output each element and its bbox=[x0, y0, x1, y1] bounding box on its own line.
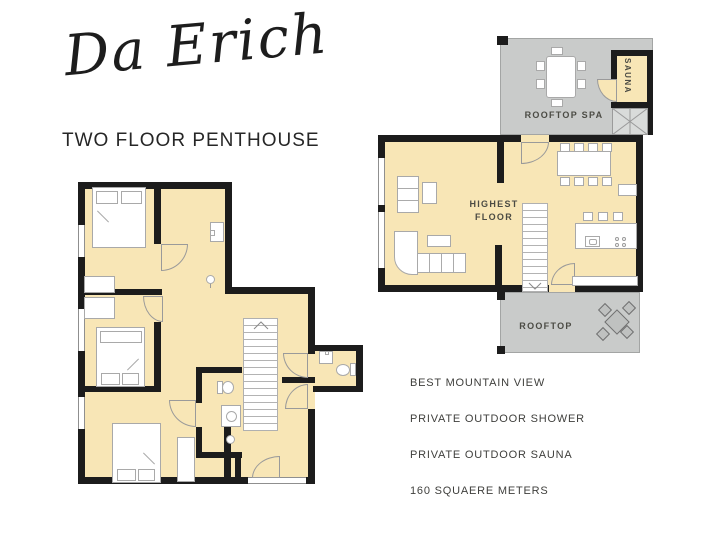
chair bbox=[536, 79, 545, 89]
wall-corner bbox=[497, 36, 508, 45]
feature-item: PRIVATE OUTDOOR SHOWER bbox=[410, 413, 585, 425]
foot-box bbox=[101, 373, 120, 385]
cooktop-burner bbox=[622, 243, 626, 247]
wardrobe bbox=[84, 297, 115, 319]
chair bbox=[560, 177, 570, 186]
window bbox=[378, 158, 385, 205]
foot-box bbox=[117, 469, 136, 481]
chair bbox=[560, 143, 570, 152]
dresser bbox=[84, 276, 115, 293]
blanket-fold bbox=[143, 452, 155, 464]
staircase bbox=[243, 318, 278, 431]
wall bbox=[154, 322, 161, 392]
wall bbox=[235, 457, 241, 484]
wall bbox=[497, 135, 504, 183]
sofa bbox=[397, 176, 419, 213]
dining-table bbox=[546, 56, 576, 98]
wall bbox=[313, 386, 363, 392]
chair bbox=[574, 177, 584, 186]
wardrobe bbox=[177, 437, 195, 482]
chair bbox=[551, 99, 563, 107]
sectional-sofa bbox=[394, 231, 418, 275]
kitchen-sink bbox=[585, 236, 600, 247]
counter bbox=[618, 184, 637, 196]
chair bbox=[588, 177, 598, 186]
blanket-fold bbox=[97, 210, 109, 222]
wall bbox=[282, 377, 315, 383]
page-title: TWO FLOOR PENTHOUSE bbox=[62, 130, 320, 152]
window bbox=[78, 225, 85, 257]
sink bbox=[319, 351, 333, 364]
toilet-tank bbox=[350, 363, 356, 376]
wall bbox=[378, 205, 385, 212]
bar-stool bbox=[583, 212, 593, 221]
stairs-up-arrow bbox=[252, 320, 270, 330]
wall bbox=[308, 287, 315, 354]
wall-cabinet bbox=[210, 222, 224, 242]
washer bbox=[221, 405, 241, 427]
foot-box bbox=[138, 469, 155, 481]
armchair bbox=[422, 182, 437, 204]
tap bbox=[325, 351, 329, 355]
cooktop-burner bbox=[615, 243, 619, 247]
counter bbox=[572, 276, 638, 286]
chair bbox=[577, 61, 586, 71]
wall bbox=[225, 182, 232, 294]
pillow bbox=[96, 191, 118, 204]
cooktop-burner bbox=[615, 237, 619, 241]
pedestal-sink bbox=[206, 275, 215, 284]
wall bbox=[378, 135, 385, 158]
cabinet-handle bbox=[210, 230, 215, 236]
pillow bbox=[121, 191, 142, 204]
highest-floor-label-line1: HIGHEST bbox=[462, 199, 526, 209]
foot-box bbox=[122, 373, 139, 385]
sink-basin bbox=[589, 239, 597, 245]
window bbox=[78, 397, 85, 429]
chair bbox=[577, 79, 586, 89]
toilet-bowl bbox=[336, 364, 350, 376]
double-bed bbox=[96, 327, 145, 387]
double-bed bbox=[92, 187, 146, 248]
fixture-stem bbox=[210, 284, 211, 288]
double-bed bbox=[112, 423, 161, 483]
wall bbox=[549, 135, 643, 142]
chair bbox=[602, 143, 612, 152]
dining-table bbox=[557, 151, 611, 176]
toilet-bowl bbox=[222, 381, 234, 394]
feature-item: PRIVATE OUTDOOR SAUNA bbox=[410, 449, 585, 461]
wall bbox=[575, 285, 643, 292]
chair bbox=[602, 177, 612, 186]
rooftop-label: ROOFTOP bbox=[505, 321, 587, 331]
sauna-label: SAUNA bbox=[623, 58, 632, 104]
wall bbox=[356, 345, 363, 392]
stairs-down-arrow bbox=[527, 281, 543, 290]
wall bbox=[495, 245, 502, 292]
blanket-fold bbox=[127, 358, 139, 370]
floor-drain bbox=[226, 435, 235, 444]
brand-script-title: Da Erich bbox=[62, 0, 351, 134]
coffee-table bbox=[427, 235, 451, 247]
bar-stool bbox=[613, 212, 623, 221]
wall-corner bbox=[497, 292, 505, 300]
feature-item: BEST MOUNTAIN VIEW bbox=[410, 377, 585, 389]
feature-item: 160 SQUAERE METERS bbox=[410, 485, 585, 497]
wall bbox=[308, 409, 315, 484]
wall bbox=[225, 287, 315, 294]
wall bbox=[154, 182, 161, 244]
wall-corner bbox=[497, 346, 505, 354]
sectional-sofa bbox=[417, 253, 466, 273]
window bbox=[378, 212, 385, 268]
highest-floor-label-line2: FLOOR bbox=[462, 212, 526, 222]
chair bbox=[551, 47, 563, 55]
rooftop-spa-label: ROOFTOP SPA bbox=[504, 110, 624, 120]
cooktop-burner bbox=[622, 237, 626, 241]
wall bbox=[196, 367, 242, 373]
feature-list: BEST MOUNTAIN VIEW PRIVATE OUTDOOR SHOWE… bbox=[410, 377, 585, 521]
chair bbox=[536, 61, 545, 71]
chair bbox=[588, 143, 598, 152]
wall bbox=[636, 135, 643, 292]
washer-drum bbox=[226, 411, 237, 422]
pillow bbox=[100, 331, 142, 343]
window bbox=[248, 477, 306, 484]
chair bbox=[574, 143, 584, 152]
bar-stool bbox=[598, 212, 608, 221]
floor-plan-page: Da Erich TWO FLOOR PENTHOUSE bbox=[0, 0, 720, 540]
wall bbox=[611, 50, 617, 82]
